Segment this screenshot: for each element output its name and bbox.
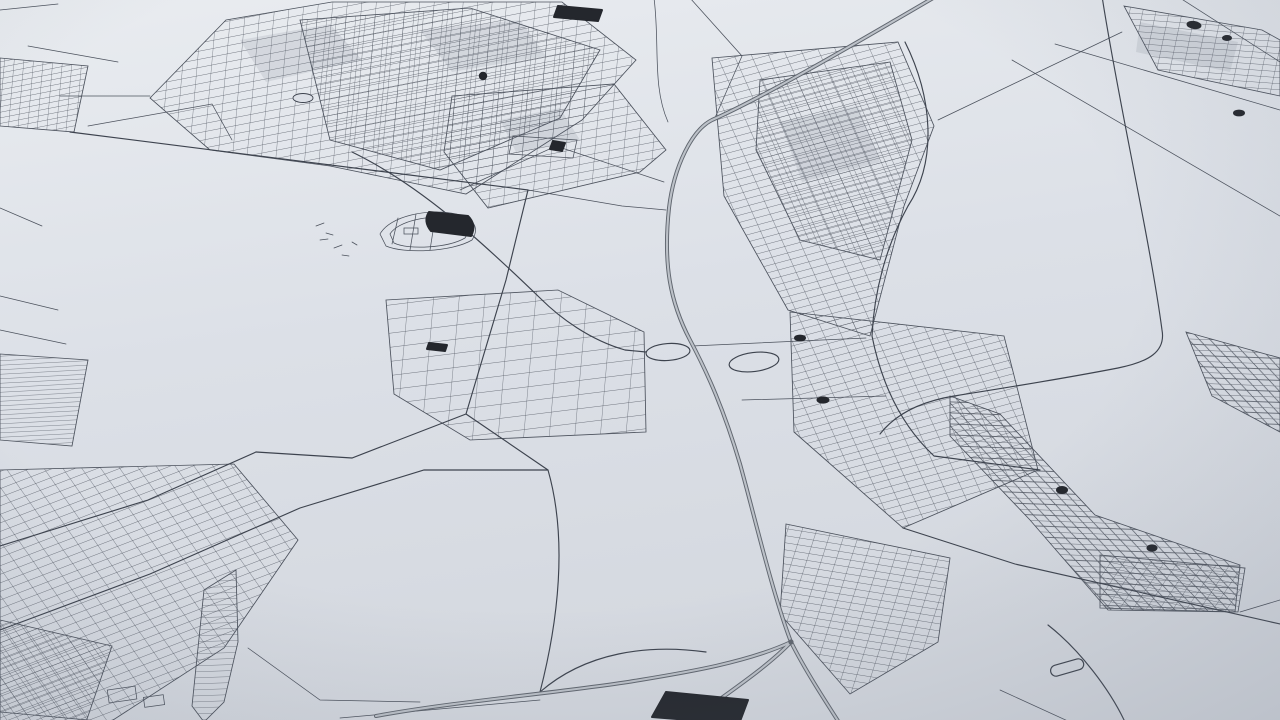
map-render-svg <box>0 0 1280 720</box>
highway-south-junction <box>788 639 793 644</box>
field-rows-west <box>0 354 88 446</box>
dark-dot-northeast-3 <box>1234 111 1244 116</box>
dark-marker-field <box>550 141 565 151</box>
dark-dot-east-1 <box>795 336 805 341</box>
small-grid-top-left <box>0 58 88 132</box>
dark-dot-northeast-2 <box>1223 36 1231 40</box>
dark-dot-southeast-1 <box>1057 487 1067 493</box>
dark-dot-east-2 <box>818 397 829 402</box>
dark-dash-center <box>427 343 447 351</box>
dark-dot-southeast-2 <box>1148 545 1157 550</box>
dark-dot-top <box>480 73 486 79</box>
pond-roundabout <box>293 94 313 103</box>
map-viewport <box>0 0 1280 720</box>
